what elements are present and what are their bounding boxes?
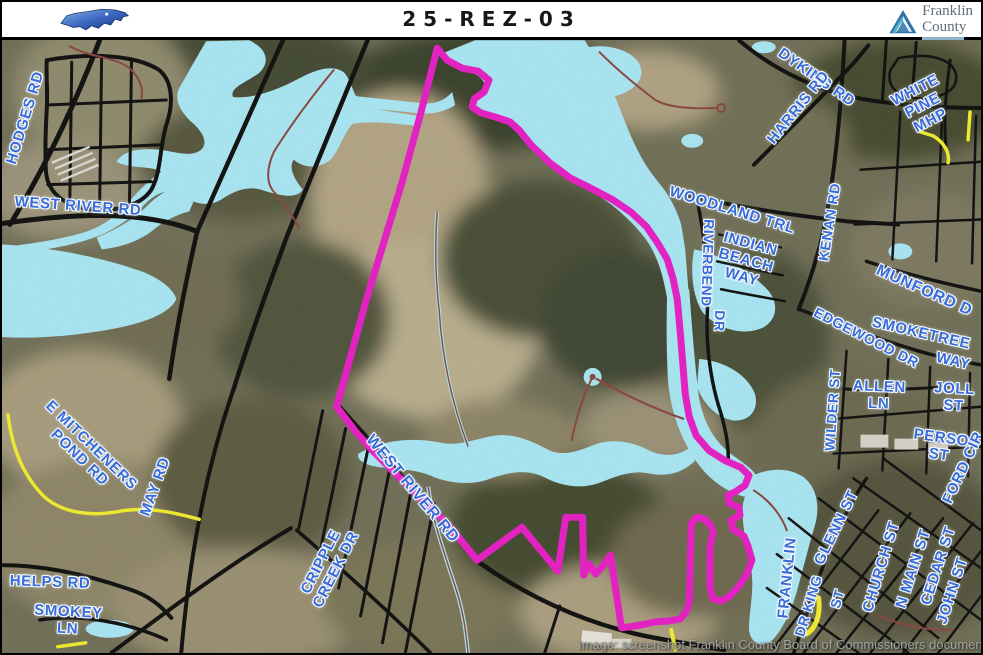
page-title: 25-REZ-03 [2,7,981,31]
franklin-county-triangle-icon [888,7,918,37]
zoning-map-canvas: HODGES RDWEST RIVER RDE MITCHENERSPOND R… [2,40,981,653]
county-logo-line1: Franklin [922,4,973,19]
county-logo-line2: County [922,20,973,35]
image-credit-caption: Image: screenshot Franklin County Board … [578,637,981,652]
map-title-bar: 25-REZ-03 Franklin County [2,2,981,40]
rezoning-map-page: 25-REZ-03 Franklin County [0,0,983,655]
franklin-county-logo: Franklin County [888,4,973,40]
aerial-grain-overlay [2,40,981,652]
franklin-county-logo-text: Franklin County [922,4,973,40]
aerial-basemap [2,40,981,653]
